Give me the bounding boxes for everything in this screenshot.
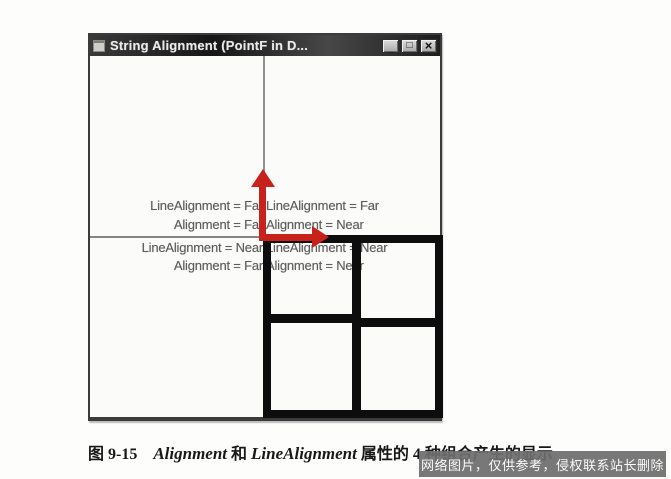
close-icon: × bbox=[425, 39, 433, 52]
app-window: String Alignment (PointF in D... _ □ × L… bbox=[88, 33, 442, 421]
figure-number: 图 9-15 bbox=[88, 446, 137, 463]
label-topleft-line2: Alignment = Far bbox=[174, 217, 263, 232]
label-topright-line1: LineAlignment = Far bbox=[266, 198, 379, 213]
red-arrow-right-shaft bbox=[263, 234, 314, 241]
red-arrow-right-icon bbox=[312, 226, 329, 248]
window-controls: _ □ × bbox=[382, 39, 437, 53]
black-grid-middle-horizontal-right bbox=[352, 318, 443, 327]
caption-term-alignment: Alignment bbox=[153, 444, 227, 463]
maximize-button[interactable]: □ bbox=[401, 39, 418, 53]
title-bar[interactable]: String Alignment (PointF in D... _ □ × bbox=[90, 35, 440, 56]
minimize-icon: _ bbox=[388, 44, 394, 54]
red-arrow-up-icon bbox=[251, 169, 275, 187]
close-button[interactable]: × bbox=[420, 39, 437, 53]
maximize-icon: □ bbox=[406, 41, 412, 51]
label-topleft-line1: LineAlignment = Far bbox=[150, 198, 263, 213]
label-bottomleft-line2: Alignment = Far bbox=[174, 258, 263, 273]
label-bottomleft-line1: LineAlignment = Near bbox=[142, 240, 263, 255]
caption-term-linealignment: LineAlignment bbox=[251, 444, 357, 463]
window-title: String Alignment (PointF in D... bbox=[110, 38, 382, 53]
minimize-button[interactable]: _ bbox=[382, 39, 399, 53]
watermark-banner: 网络图片，仅供参考，侵权联系站长删除 bbox=[419, 451, 666, 477]
watermark-text: 网络图片，仅供参考，侵权联系站长删除 bbox=[421, 455, 664, 474]
app-icon bbox=[93, 40, 105, 52]
red-arrow-up-shaft bbox=[259, 184, 266, 241]
scanned-page: String Alignment (PointF in D... _ □ × L… bbox=[0, 0, 671, 479]
caption-conjunction: 和 bbox=[227, 446, 251, 463]
black-grid-middle-horizontal-left bbox=[263, 314, 356, 323]
